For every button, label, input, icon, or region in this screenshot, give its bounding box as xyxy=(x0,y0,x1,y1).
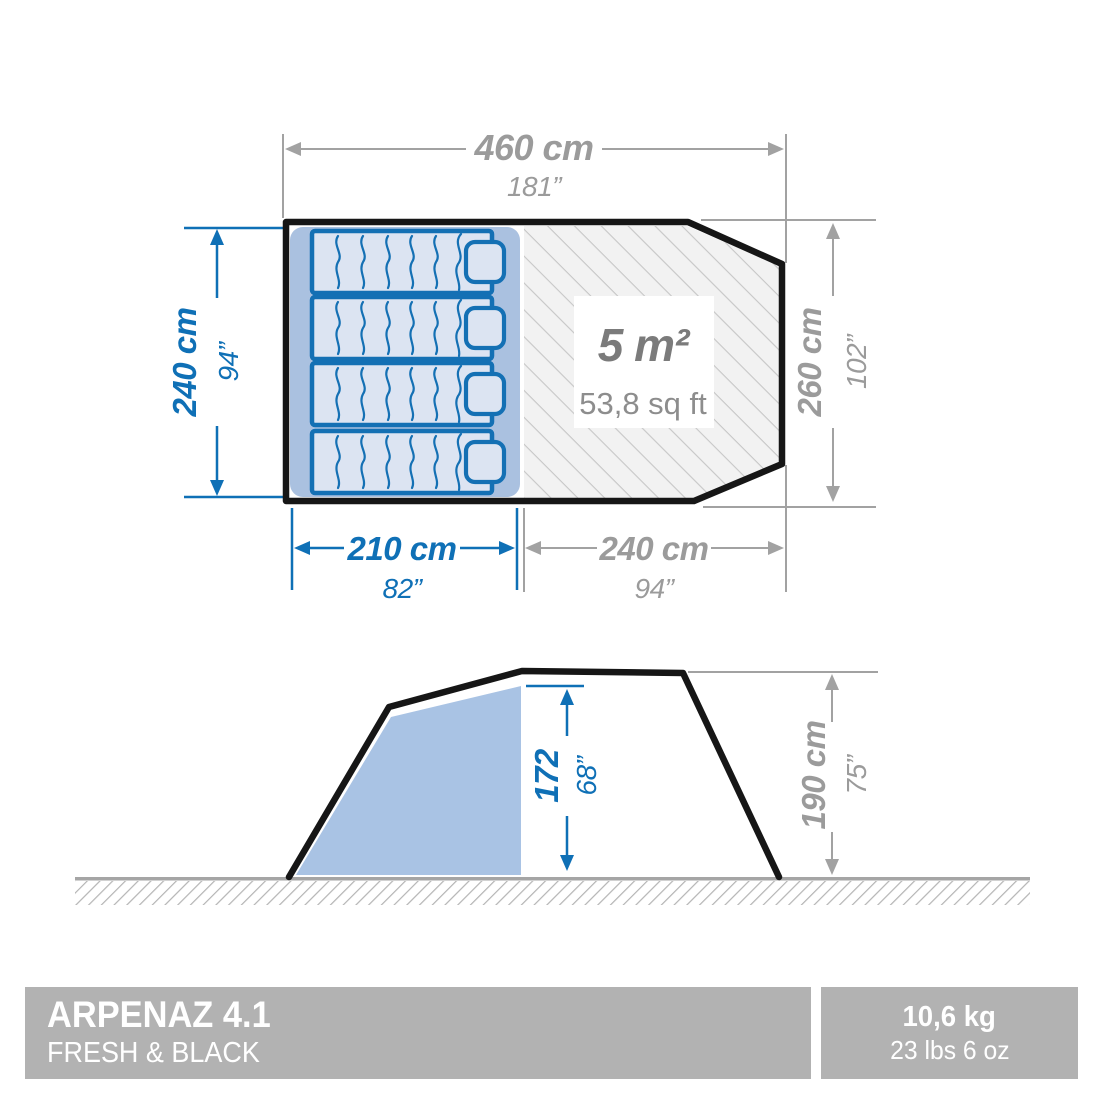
ground xyxy=(75,877,1030,905)
plan-view: 460 cm 181” 5 m² 53,8 sq ft 240 cm 94 xyxy=(166,127,876,604)
living-area-label: 5 m² 53,8 sq ft xyxy=(574,296,714,428)
product-name: ARPENAZ 4.1 xyxy=(47,996,758,1035)
bedroom-depth-in: 94” xyxy=(213,340,244,381)
total-width-cm: 460 cm xyxy=(473,127,593,168)
product-line: FRESH & BLACK xyxy=(47,1038,758,1068)
dim-living-width: 240 cm 94” xyxy=(525,530,784,604)
side-view: 172 68” 190 cm 75” xyxy=(75,671,1030,905)
diagram-canvas: 460 cm 181” 5 m² 53,8 sq ft 240 cm 94 xyxy=(0,0,1100,980)
dim-bedroom-depth: 240 cm 94” xyxy=(166,229,244,496)
bedroom-width-in: 82” xyxy=(383,573,424,604)
weight-imperial: 23 lbs 6 oz xyxy=(890,1035,1009,1066)
mattress xyxy=(312,297,504,359)
living-width-cm: 240 cm xyxy=(599,530,709,567)
weight-panel: 10,6 kg 23 lbs 6 oz xyxy=(821,987,1078,1079)
mattress xyxy=(312,231,504,293)
area-metric: 5 m² xyxy=(598,319,691,371)
product-name-panel: ARPENAZ 4.1 FRESH & BLACK xyxy=(25,987,811,1079)
dim-bedroom-width: 210 cm 82” xyxy=(294,530,515,604)
bedroom-depth-cm: 240 cm xyxy=(166,308,203,418)
exterior-height-cm: 190 cm xyxy=(795,721,832,830)
total-width-in: 181” xyxy=(507,171,563,202)
sleeping-area xyxy=(290,227,520,497)
dim-total-width: 460 cm 181” xyxy=(285,127,784,202)
bedroom-width-cm: 210 cm xyxy=(347,530,457,567)
product-banner: ARPENAZ 4.1 FRESH & BLACK 10,6 kg 23 lbs… xyxy=(0,987,1100,1079)
living-width-in: 94” xyxy=(635,573,676,604)
total-depth-cm: 260 cm xyxy=(791,308,828,418)
total-depth-in: 102” xyxy=(841,333,872,389)
bedroom-profile xyxy=(296,686,521,875)
tent-spec-diagram: 460 cm 181” 5 m² 53,8 sq ft 240 cm 94 xyxy=(0,0,1100,1100)
interior-height-in: 68” xyxy=(571,754,602,795)
weight-metric: 10,6 kg xyxy=(903,1000,996,1035)
dim-total-depth: 260 cm 102” xyxy=(791,223,872,502)
exterior-height-in: 75” xyxy=(841,753,872,794)
area-imperial: 53,8 sq ft xyxy=(579,386,707,421)
mattress xyxy=(312,431,504,493)
mattress xyxy=(312,363,504,425)
interior-height-cm: 172 xyxy=(528,748,565,803)
